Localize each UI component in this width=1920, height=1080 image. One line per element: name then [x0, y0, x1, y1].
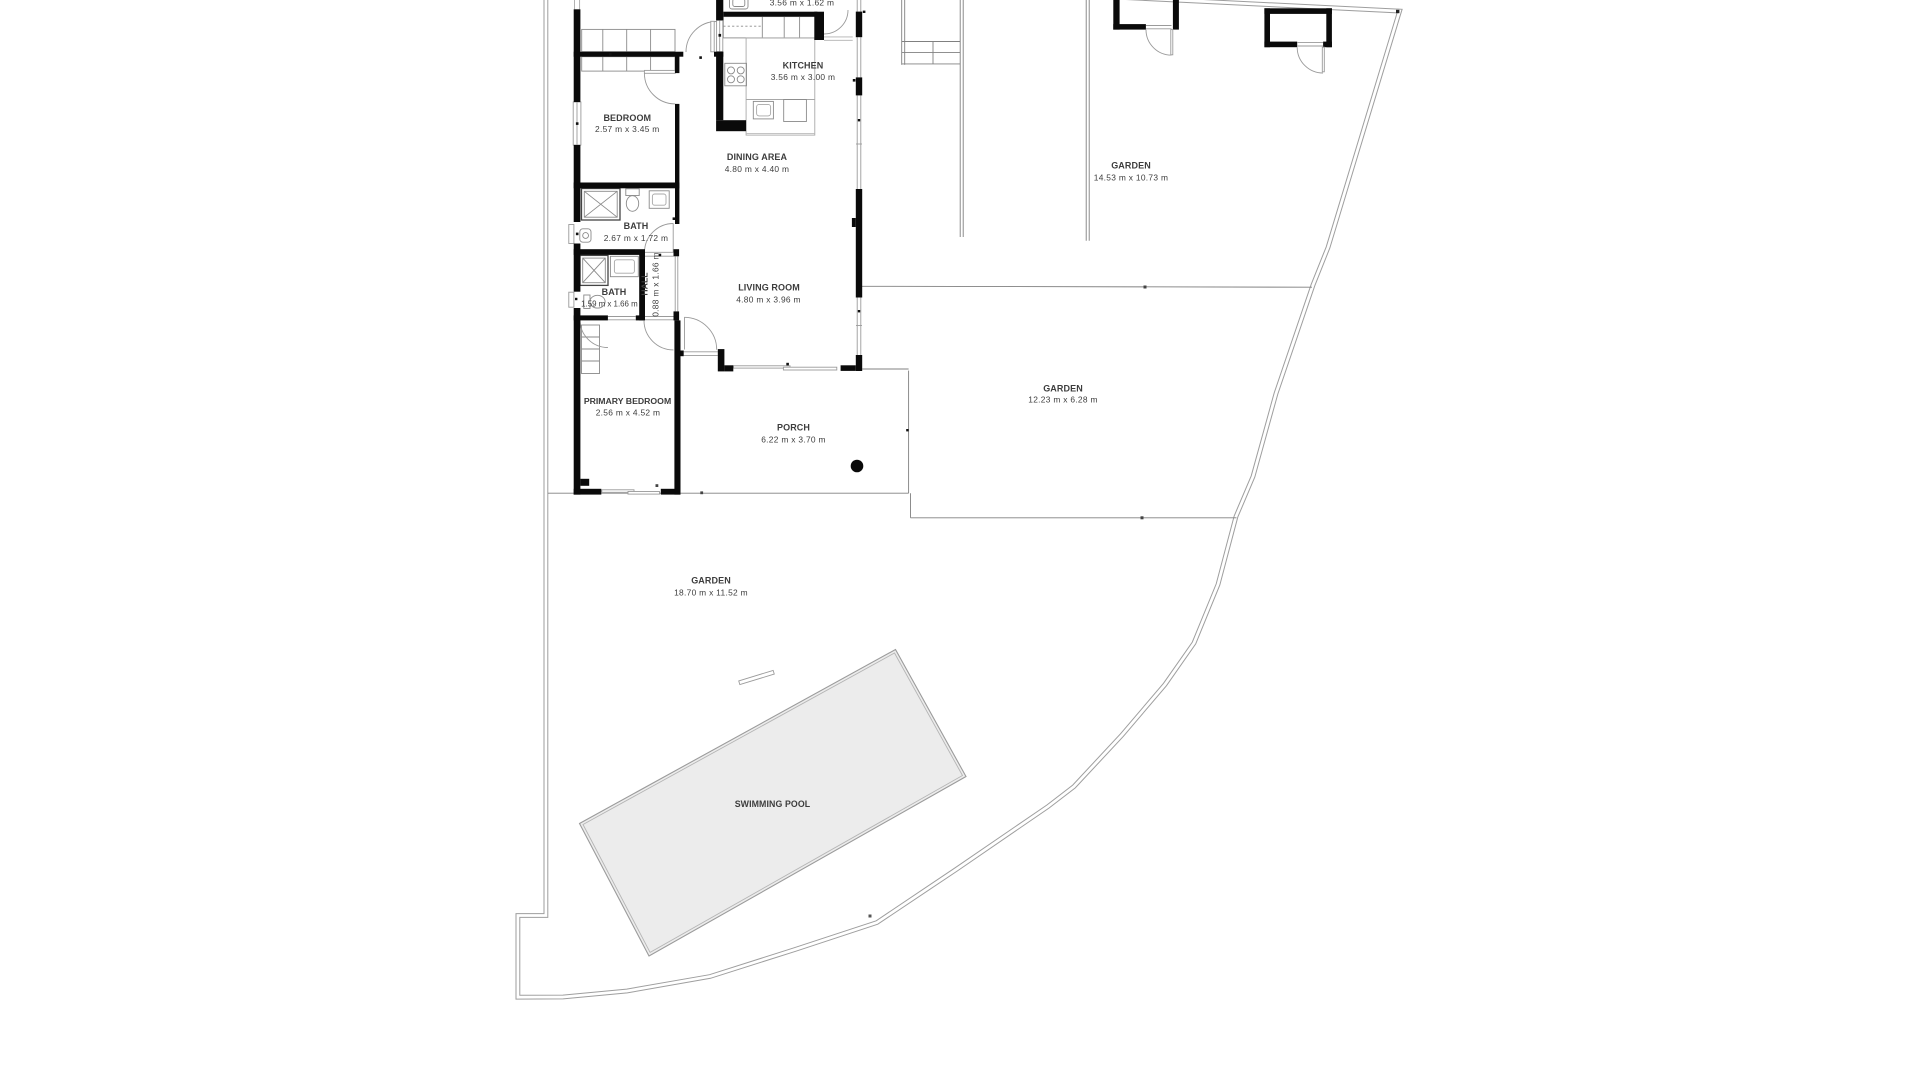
svg-text:18.70 m x 11.52 m: 18.70 m x 11.52 m [674, 587, 748, 597]
svg-text:14.53 m x 10.73 m: 14.53 m x 10.73 m [1094, 173, 1168, 183]
svg-text:BATH: BATH [602, 287, 627, 297]
svg-text:12.23 m x 6.28 m: 12.23 m x 6.28 m [1028, 395, 1098, 405]
svg-text:2.67 m x 1.72 m: 2.67 m x 1.72 m [604, 233, 669, 243]
svg-text:GARDEN: GARDEN [691, 576, 731, 586]
svg-text:SWIMMING POOL: SWIMMING POOL [735, 799, 811, 809]
svg-text:BATH: BATH [624, 221, 649, 231]
svg-text:6.22 m x 3.70 m: 6.22 m x 3.70 m [761, 435, 826, 445]
svg-text:GARDEN: GARDEN [1111, 161, 1151, 171]
svg-text:2.57 m x 3.45 m: 2.57 m x 3.45 m [595, 124, 660, 134]
svg-text:0.88 m x 1.66 m: 0.88 m x 1.66 m [651, 252, 661, 317]
svg-text:PORCH: PORCH [777, 423, 810, 433]
svg-text:4.80 m x 3.96 m: 4.80 m x 3.96 m [736, 294, 801, 304]
svg-text:2.56 m x 4.52 m: 2.56 m x 4.52 m [596, 408, 661, 418]
svg-text:3.56 m x 3.00 m: 3.56 m x 3.00 m [771, 72, 836, 82]
svg-text:LIVING ROOM: LIVING ROOM [738, 283, 800, 293]
svg-text:PRIMARY BEDROOM: PRIMARY BEDROOM [584, 396, 671, 406]
svg-text:HALL: HALL [640, 272, 650, 295]
svg-text:4.80 m x 4.40 m: 4.80 m x 4.40 m [725, 164, 790, 174]
svg-text:3.56 m x 1.62 m: 3.56 m x 1.62 m [770, 0, 835, 8]
svg-text:DINING AREA: DINING AREA [727, 152, 788, 162]
svg-text:KITCHEN: KITCHEN [783, 60, 824, 70]
svg-text:GARDEN: GARDEN [1043, 383, 1083, 393]
svg-text:BEDROOM: BEDROOM [603, 113, 651, 123]
svg-text:1.59 m x 1.66 m: 1.59 m x 1.66 m [581, 300, 638, 309]
